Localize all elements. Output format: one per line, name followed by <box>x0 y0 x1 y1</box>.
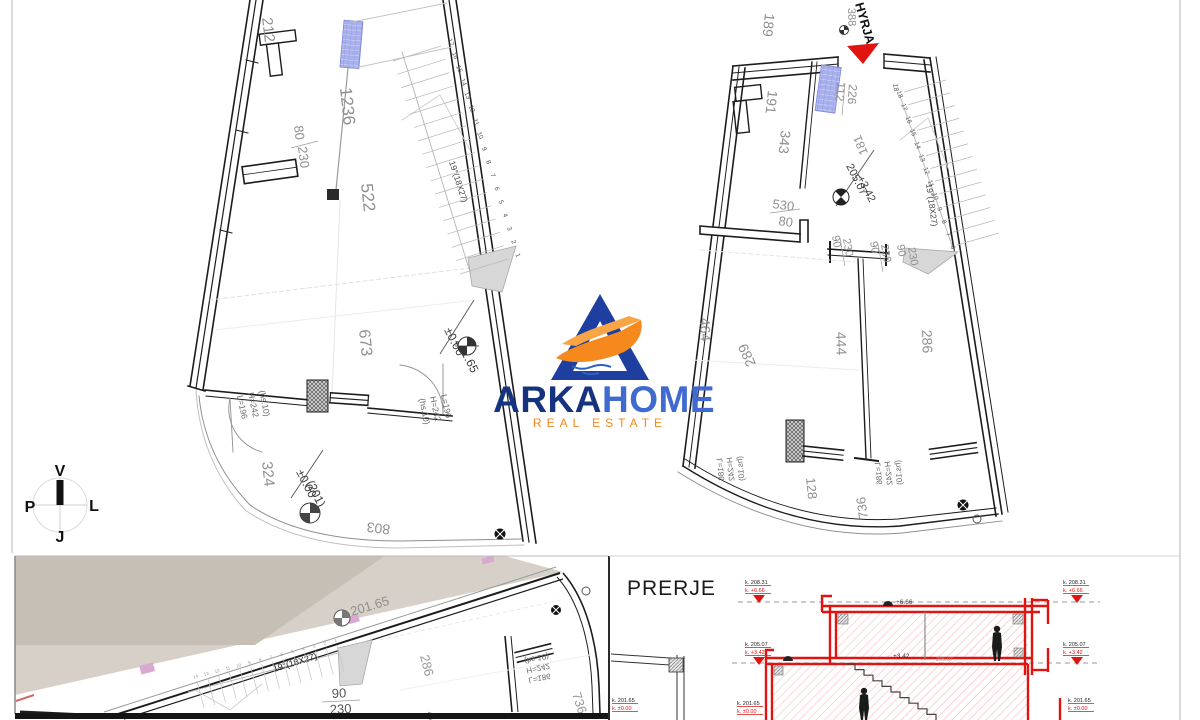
level-rel: k. ±0.00 <box>737 709 757 715</box>
stair-steps-tl: 1716151413121110987654321 <box>393 38 521 274</box>
dim-label: 226 <box>845 84 860 105</box>
section-panel: PRERJE <box>609 556 1180 720</box>
column-hatched <box>307 380 328 412</box>
drawing-canvas: 212 80 230 1236 522 673 324 803 ±0.00 20… <box>0 0 1200 720</box>
stair-step-number: 16 <box>904 115 913 125</box>
stair-step-number: 15 <box>454 64 463 74</box>
stair-step-number: 6 <box>949 245 957 251</box>
door-leaf <box>330 393 369 406</box>
dim-pair: 90 230 90 230 90 230 <box>829 234 920 272</box>
level-rel: k. +6.66 <box>745 588 765 594</box>
dim-label: 128 <box>803 477 820 500</box>
logo-tagline: REAL ESTATE <box>533 416 667 430</box>
dim-label: 324 <box>258 461 278 488</box>
stair-step-number: 1 <box>513 252 521 258</box>
stair-step-number: 2 <box>509 239 517 245</box>
stair-step-number: 12 <box>921 166 930 176</box>
stair-tread-line <box>957 233 999 245</box>
level-marker: k. 201.65 k. ±0.00 <box>737 701 763 715</box>
window-symbol <box>340 20 363 68</box>
compass-east-label: L <box>89 498 99 515</box>
stair-step-number: 12 <box>467 104 476 114</box>
stair-step-number: 15 <box>908 128 917 138</box>
stair-tread-line <box>931 157 973 169</box>
level-elev: k. 205.07 <box>745 642 768 648</box>
compass-west-label: P <box>25 499 36 516</box>
dim-label: 90 <box>331 685 346 701</box>
stair-step-number: 4 <box>501 213 509 219</box>
level-annotation: ±0.00 201.65 <box>440 300 482 375</box>
stair-tread-line <box>944 195 986 207</box>
stair-label: 19°(18X27) <box>924 183 940 227</box>
level-rel: k. +6.66 <box>1063 588 1083 594</box>
column-symbol <box>327 189 339 200</box>
benchmark-dot-icon <box>495 529 506 540</box>
stair-step-number: 5 <box>497 199 505 205</box>
stair-step-number: 18 <box>895 90 904 100</box>
level-rel: k. +3.42 <box>1063 650 1083 656</box>
compass-south-label: J <box>56 529 65 546</box>
level-elev: k. 201.65 <box>737 701 760 707</box>
elev-small: +3.42 <box>893 653 910 660</box>
stair-step-number: 14 <box>458 78 467 88</box>
level-marker: k. 201.65 k. ±0.00 <box>1068 698 1094 712</box>
panel-bottom-border <box>15 713 608 719</box>
dim-label: 388 <box>845 8 858 27</box>
stair-step-number: 11 <box>471 118 480 127</box>
stair-step-number: 6 <box>493 186 501 192</box>
section-title: PRERJE <box>627 577 716 600</box>
level-marker: k. 208.31 k. +6.66 <box>1063 580 1089 603</box>
benchmark-icon <box>334 610 350 626</box>
level-annotation: ±0.00 (201) <box>291 450 329 523</box>
dim-label: 464 <box>697 318 714 342</box>
level-triangle-icon <box>753 595 765 603</box>
compass-rose: V L J P <box>25 463 99 546</box>
arkahome-logo: ARKA HOME REAL ESTATE <box>493 294 715 430</box>
logo-text-home: HOME <box>602 379 715 420</box>
stair-tread-line <box>926 144 968 156</box>
level-elev: k. 208.31 <box>1063 580 1086 586</box>
dim-label: 230 <box>840 237 855 257</box>
level-rel: k. ±0.00 <box>1068 706 1088 712</box>
stair-tread-line <box>401 73 449 88</box>
benchmark-icon <box>300 503 320 523</box>
stair-tread-line <box>904 80 946 92</box>
dim-label: 191 <box>763 90 781 115</box>
stair-tread-line <box>393 46 441 61</box>
level-marker: k. 208.31 k. +6.66 <box>745 580 771 603</box>
dim-label: 286 <box>919 330 936 354</box>
stair-label: 19°(18X27) <box>447 160 470 204</box>
stair-tread-line <box>917 118 959 130</box>
stair-step-number: 8 <box>484 159 492 165</box>
dim-label: 736 <box>853 496 871 520</box>
benchmark-icon <box>833 189 849 205</box>
plan-top-left <box>188 0 536 548</box>
dim-label: 522 <box>357 182 379 212</box>
benchmark-dot-icon <box>551 605 561 615</box>
level-marker: k. 201.65 k. ±0.00 <box>612 698 638 712</box>
stair-step-number: 7 <box>488 173 496 179</box>
level-elev: k. 201.65 <box>612 698 635 704</box>
stair-step-number: 7 <box>944 232 952 238</box>
level-triangle-icon <box>1071 657 1083 665</box>
architectural-drawing-page: 212 80 230 1236 522 673 324 803 ±0.00 20… <box>0 0 1200 720</box>
door-spec-line: (hs.10) <box>735 456 747 482</box>
door-leaf <box>930 443 978 459</box>
dim-label: 212 <box>258 16 278 43</box>
level-marker: k. 205.07 k. +3.42 <box>1063 642 1089 665</box>
stair-step-number: 8 <box>940 219 948 225</box>
plan-bottom-left-panel: 201.65 19°(18X27) 90 230 286 444 736 L=1… <box>15 556 608 720</box>
dim-label: 289 <box>735 341 759 369</box>
dim-label: 803 <box>366 519 391 538</box>
column-hatched <box>786 420 804 462</box>
compass-north-label: V <box>55 463 66 480</box>
plan-top-left-dims: 212 80 230 1236 522 673 324 803 ±0.00 20… <box>235 16 482 538</box>
dim-label: 181 <box>850 133 871 157</box>
stair-step-number: 13 <box>917 154 926 164</box>
level-elev: k. 205.07 <box>1063 642 1086 648</box>
stair-tread-line <box>939 182 981 194</box>
dim-label: 230 <box>878 243 893 263</box>
dim-label: 444 <box>833 332 850 356</box>
stair-tread-line <box>397 59 445 74</box>
stair-step-number: 3 <box>505 226 513 232</box>
level-elev: k. 208.31 <box>745 580 768 586</box>
level-annotation: 205.07 +3.42 <box>833 150 878 206</box>
logo-wave-icon <box>572 365 611 369</box>
dim-label: 80 <box>291 125 308 141</box>
level-elev: k. 201.65 <box>1068 698 1091 704</box>
logo-text-arka: ARKA <box>493 379 602 420</box>
dim-label: 189 <box>760 13 778 38</box>
level-rel: k. ±0.00 <box>612 706 632 712</box>
level-triangle-icon <box>753 657 765 665</box>
stair-step-number: 9 <box>935 206 943 212</box>
dim-label: 80 <box>778 213 794 230</box>
elev-small: 205.07 <box>936 657 953 663</box>
dim-label: 1236 <box>336 86 359 126</box>
dim-label: 230 <box>295 146 313 169</box>
entrance-arrow-icon <box>847 43 879 64</box>
elev-small: +6.66 <box>896 599 913 606</box>
stair-tread-line <box>953 220 995 232</box>
benchmark-icon <box>840 26 849 35</box>
level-rel: k. +3.42 <box>745 650 765 656</box>
door-spec-line: (hs.10) <box>893 460 905 486</box>
door-leaf <box>803 446 844 460</box>
stair-step-number: 17 <box>899 103 908 113</box>
stair-step-number: 9 <box>480 146 488 152</box>
stair-step-number: 14 <box>913 141 922 151</box>
stair-step-number: 17 <box>446 38 455 48</box>
dim-label: 673 <box>355 329 375 357</box>
stair-tread-line <box>913 106 955 118</box>
compass-needle <box>57 480 64 505</box>
benchmark-dot-icon <box>958 500 969 511</box>
dim-label: 343 <box>776 130 794 155</box>
